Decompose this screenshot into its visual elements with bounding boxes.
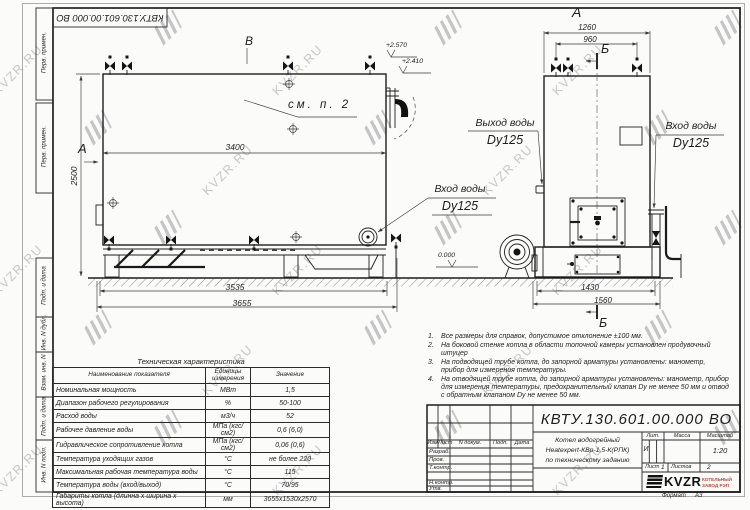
lit-value: И xyxy=(642,446,650,453)
scale-header: Масштаб xyxy=(700,433,740,439)
kvzr-sub1: КОТЕЛЬНЫЙ xyxy=(702,477,732,482)
row-razrab: Разраб. xyxy=(429,449,450,455)
col-list: Лист xyxy=(438,440,450,446)
col-podp: Подп. xyxy=(490,440,511,446)
kvzr-brand-text: KVZR xyxy=(664,474,701,489)
sheet-label: Лист xyxy=(645,464,659,470)
product-name-line3: по техническому заданию xyxy=(533,457,642,464)
mass-header: Масса xyxy=(664,433,700,439)
col-doc: N докум. xyxy=(450,440,490,446)
row-tkontr: Т.контр. xyxy=(429,465,452,471)
designation: КВТУ.130.601.00.000 ВО xyxy=(533,407,740,432)
col-data: Дата xyxy=(511,440,533,446)
title-block: КВТУ.130.601.00.000 ВО Изм Лист N докум.… xyxy=(0,0,750,500)
drawing-sheet: KVZR.RUKVZR.RUKVZR.RUKVZR.RUKVZR.RUKVZR.… xyxy=(0,0,750,500)
sheets-label: Листов xyxy=(671,464,691,470)
sheets-value: 2 xyxy=(707,464,711,471)
kvzr-logo-icon xyxy=(646,475,663,489)
scale-value: 1:20 xyxy=(700,446,740,455)
kvzr-sub2: ЗАВОД РЭП xyxy=(702,483,729,488)
col-izm: Изм xyxy=(427,440,438,446)
row-utv: Утв. xyxy=(429,486,442,492)
lit-header: Лит. xyxy=(642,433,664,439)
product-name-line2: Heatexpert-КВр-1,5-К(РПК) xyxy=(533,447,642,454)
format-value: А3 xyxy=(695,493,702,499)
row-prov: Пров. xyxy=(429,457,444,463)
format-label: Формат xyxy=(662,493,686,499)
sheet-value: 1 xyxy=(661,464,665,471)
product-name-line1: Котел водогрейный xyxy=(533,437,642,444)
